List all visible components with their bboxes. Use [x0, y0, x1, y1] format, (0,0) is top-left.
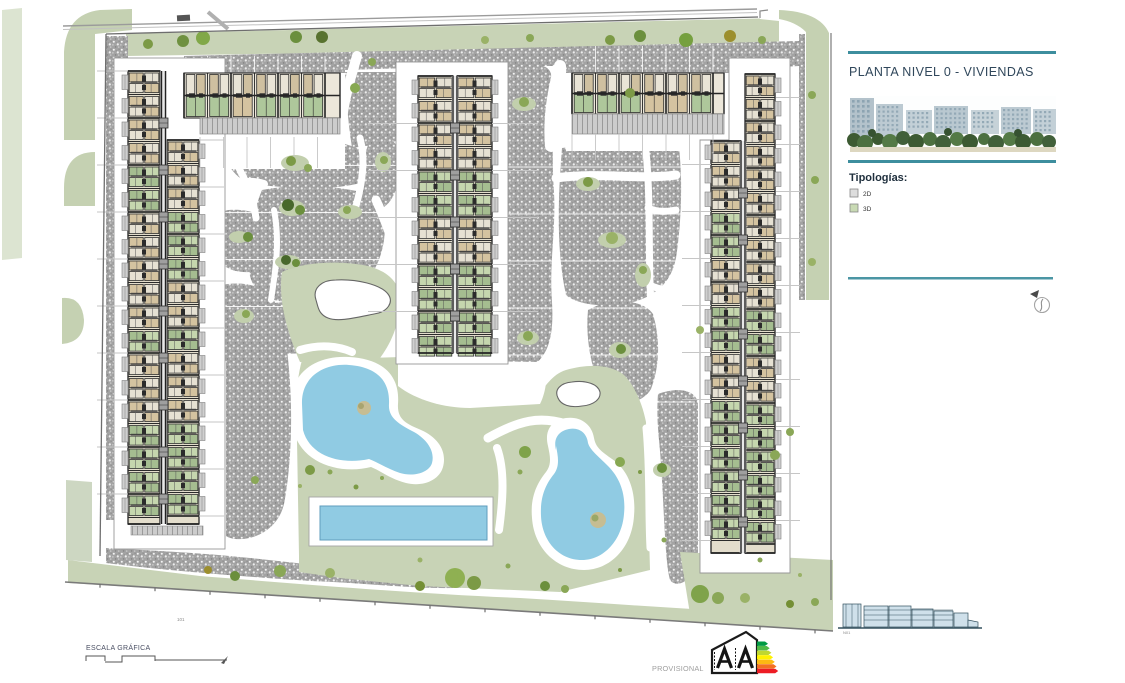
svg-text:ESCALA GRÁFICA: ESCALA GRÁFICA: [86, 643, 151, 652]
svg-text:Tipologías:: Tipologías:: [849, 172, 907, 184]
svg-text:PLANTA NIVEL 0 - VIVIENDAS: PLANTA NIVEL 0 - VIVIENDAS: [849, 65, 1034, 79]
svg-text:101: 101: [177, 617, 185, 622]
svg-text:PROVISIONAL: PROVISIONAL: [652, 664, 704, 673]
svg-text:N01: N01: [843, 630, 851, 635]
svg-text:3D: 3D: [863, 206, 872, 213]
svg-text:2D: 2D: [863, 191, 872, 198]
